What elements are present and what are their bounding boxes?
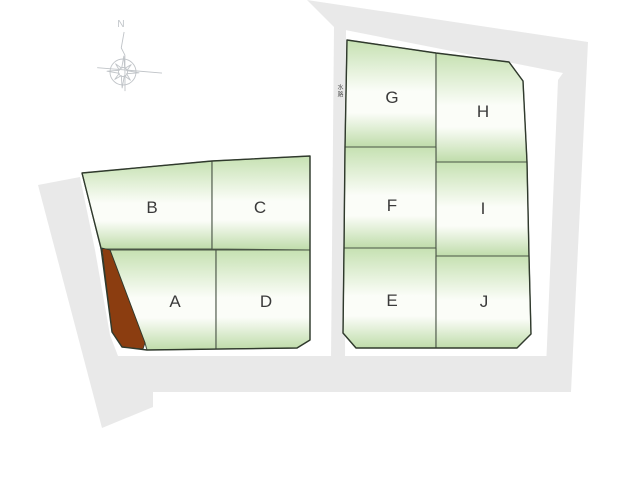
compass-ew-line (97, 68, 162, 73)
parcel-h: H (436, 53, 527, 162)
parcel-h-label: H (477, 102, 489, 121)
parcel-b: B (82, 161, 212, 249)
compass-rose (96, 31, 164, 93)
parcel-i-label: I (481, 199, 486, 218)
compass-inner-circle (118, 67, 127, 76)
parcel-i: I (436, 162, 529, 256)
parcel-j-label: J (480, 292, 489, 311)
parcel-f-label: F (387, 196, 397, 215)
lot-layout-map: N B C A D G H F (0, 0, 640, 480)
compass-star (106, 55, 140, 89)
parcel-f: F (344, 147, 436, 248)
parcel-d-label: D (260, 292, 272, 311)
parcel-e-label: E (386, 291, 397, 310)
parcel-d: D (216, 250, 310, 349)
left-block: B C A D (82, 156, 310, 350)
parcel-e: E (343, 248, 436, 348)
parcel-a-label: A (169, 292, 181, 311)
parcel-g: G (345, 40, 436, 147)
parcel-c-label: C (254, 198, 266, 217)
parcel-c: C (212, 156, 310, 250)
parcel-j: J (436, 256, 531, 348)
waterway-strip-label: 水路 (336, 83, 343, 98)
compass-north-label: N (117, 19, 124, 30)
parcel-b-label: B (146, 198, 157, 217)
site-plan-canvas: N B C A D G H F (0, 0, 640, 480)
right-block: G H F I E J (343, 40, 531, 348)
parcel-g-label: G (385, 88, 398, 107)
